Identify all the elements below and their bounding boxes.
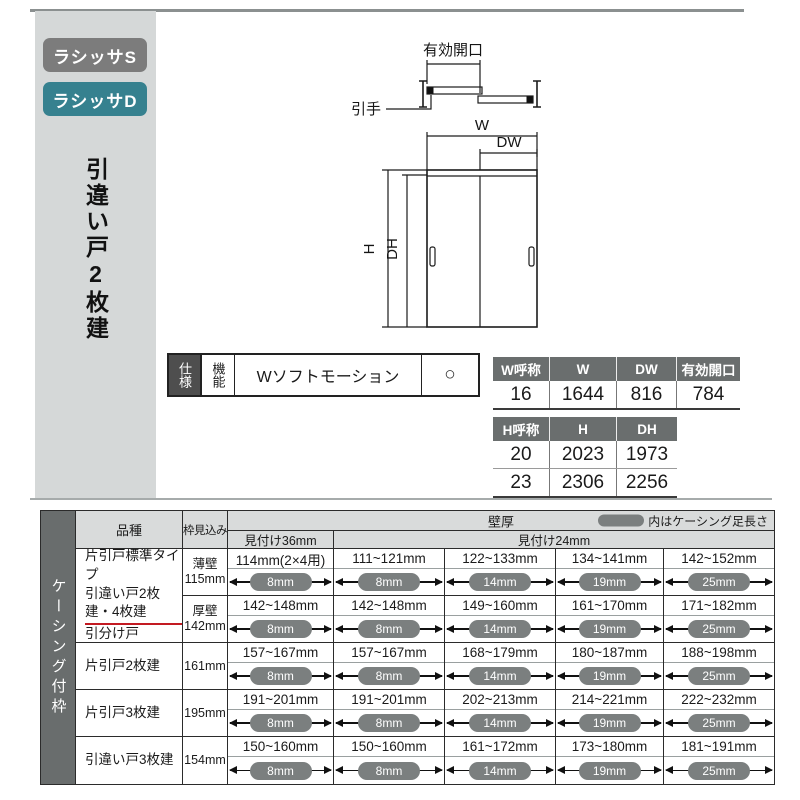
casing-leg-pill: 8mm — [250, 714, 312, 732]
casing-leg-dimension: 8mm — [334, 569, 444, 595]
wall-range-cell: 122~133mm 14mm — [445, 549, 556, 596]
table-row: 23 2306 2256 — [493, 469, 677, 498]
wall-thickness-range: 149~160mm — [445, 596, 555, 616]
col-header: H呼称 — [493, 417, 550, 441]
arrow-right-icon — [546, 578, 554, 586]
col-header: DH — [617, 417, 677, 441]
arrow-right-icon — [324, 719, 332, 727]
wall-range-cell: 202~213mm 14mm — [445, 690, 556, 737]
casing-leg-pill: 19mm — [579, 667, 641, 685]
w-dimension-label: W — [475, 117, 490, 134]
casing-leg-pill: 25mm — [688, 762, 750, 780]
arrow-left-icon — [229, 578, 237, 586]
cell-h-name: 23 — [493, 469, 550, 496]
arrow-left-icon — [335, 766, 343, 774]
casing-leg-pill: 14mm — [469, 667, 531, 685]
arrow-right-icon — [654, 625, 662, 633]
wall-range-cell: 150~160mm 8mm — [334, 737, 445, 784]
arrow-right-icon — [546, 672, 554, 680]
arrow-left-icon — [446, 578, 454, 586]
casing-leg-pill: 8mm — [250, 667, 312, 685]
wall-range-cell: 142~148mm 8mm — [334, 596, 445, 643]
arrow-left-icon — [665, 766, 673, 774]
casing-frame-table: ケーシング付枠 品種 枠見込み 壁厚 内はケーシング足長さ 見付け36mm 見付… — [40, 510, 775, 785]
product-line-badge-lasissa-s: ラシッサS — [43, 38, 147, 72]
casing-leg-dimension: 14mm — [445, 710, 555, 736]
col-header: 有効開口 — [677, 357, 740, 381]
product-name-group4: 引違い戸3枚建 — [76, 737, 183, 784]
wall-thickness-range: 142~148mm — [228, 596, 333, 616]
arrow-left-icon — [229, 719, 237, 727]
casing-leg-dimension: 25mm — [664, 663, 774, 689]
arrow-left-icon — [335, 625, 343, 633]
arrow-right-icon — [654, 766, 662, 774]
table-row: 16 1644 816 784 — [493, 381, 740, 410]
wall-range-cell: 149~160mm 14mm — [445, 596, 556, 643]
casing-leg-pill: 8mm — [250, 620, 312, 638]
pull-handle-label: 引手 — [351, 101, 381, 118]
wall-thickness-range: 150~160mm — [228, 737, 333, 757]
spec-table: 仕様 機能 Wソフトモーション ○ — [167, 353, 480, 397]
cell-effective-opening: 784 — [677, 381, 740, 408]
arrow-right-icon — [435, 719, 443, 727]
wall-thickness-range: 161~170mm — [556, 596, 663, 616]
wall-range-cell: 111~121mm 8mm — [334, 549, 445, 596]
wall-range-cell: 173~180mm 19mm — [556, 737, 664, 784]
wall-range-cell: 180~187mm 19mm — [556, 643, 664, 690]
casing-leg-dimension: 25mm — [664, 757, 774, 784]
casing-leg-pill: 14mm — [469, 620, 531, 638]
product-line-highlighted: 引違い戸2枚建・4枚建 — [85, 585, 182, 626]
wall-thickness-range: 214~221mm — [556, 690, 663, 710]
casing-leg-pill: 19mm — [579, 762, 641, 780]
col-header: DW — [617, 357, 677, 381]
arrow-right-icon — [765, 578, 773, 586]
sidebar: ラシッサS ラシッサD 引違い戸2枚建 — [35, 11, 156, 498]
col-header: W — [550, 357, 617, 381]
arrow-right-icon — [654, 578, 662, 586]
arrow-left-icon — [229, 766, 237, 774]
casing-leg-pill: 25mm — [688, 620, 750, 638]
wall-thickness-range: 157~167mm — [228, 643, 333, 663]
casing-leg-dimension: 8mm — [334, 663, 444, 689]
arrow-right-icon — [654, 672, 662, 680]
arrow-left-icon — [557, 672, 565, 680]
wall-thickness-range: 191~201mm — [228, 690, 333, 710]
casing-leg-dimension: 14mm — [445, 569, 555, 595]
wall-range-cell: 214~221mm 19mm — [556, 690, 664, 737]
cell-w-name: 16 — [493, 381, 550, 408]
header-frame-depth: 枠見込み — [183, 511, 228, 549]
frame-depth-value: 115mm — [185, 572, 226, 587]
product-line: 引分け戸 — [85, 625, 182, 643]
header-wall-thickness: 壁厚 内はケーシング足長さ — [228, 511, 774, 531]
arrow-right-icon — [765, 719, 773, 727]
arrow-left-icon — [557, 719, 565, 727]
h-dimension-table: H呼称 H DH 20 2023 1973 23 2306 2256 — [493, 417, 677, 498]
casing-leg-dimension: 25mm — [664, 616, 774, 642]
arrow-right-icon — [324, 578, 332, 586]
casing-leg-dimension: 19mm — [556, 569, 663, 595]
arrow-left-icon — [335, 672, 343, 680]
col-header: W呼称 — [493, 357, 550, 381]
frame-depth-cell: 161mm — [183, 643, 228, 690]
wall-thickness-range: 142~148mm — [334, 596, 444, 616]
page-title: 引違い戸2枚建 — [79, 157, 113, 342]
wall-range-cell: 188~198mm 25mm — [664, 643, 774, 690]
arrow-right-icon — [546, 625, 554, 633]
arrow-left-icon — [665, 719, 673, 727]
wall-range-cell: 171~182mm 25mm — [664, 596, 774, 643]
wall-thickness-range: 222~232mm — [664, 690, 774, 710]
casing-leg-dimension: 25mm — [664, 710, 774, 736]
arrow-right-icon — [546, 719, 554, 727]
casing-leg-dimension: 19mm — [556, 757, 663, 784]
casing-side-label: ケーシング付枠 — [41, 511, 76, 784]
casing-leg-dimension: 8mm — [228, 616, 333, 642]
casing-leg-dimension: 8mm — [228, 757, 333, 784]
wall-range-cell: 191~201mm 8mm — [334, 690, 445, 737]
casing-leg-pill: 8mm — [250, 762, 312, 780]
casing-leg-dimension: 8mm — [228, 663, 333, 689]
wall-range-cell: 114mm(2×4用) 8mm — [228, 549, 334, 596]
casing-leg-dimension: 19mm — [556, 616, 663, 642]
casing-leg-pill: 14mm — [469, 762, 531, 780]
w-table-header: W呼称 W DW 有効開口 — [493, 357, 740, 381]
h-table-header: H呼称 H DH — [493, 417, 677, 441]
arrow-left-icon — [665, 672, 673, 680]
casing-leg-pill: 14mm — [469, 714, 531, 732]
wall-thickness-range: 168~179mm — [445, 643, 555, 663]
wall-thickness-range: 181~191mm — [664, 737, 774, 757]
arrow-right-icon — [765, 625, 773, 633]
cell-dh: 2256 — [617, 469, 677, 496]
casing-leg-pill: 8mm — [358, 620, 420, 638]
frame-depth-cell: 厚壁 142mm — [183, 596, 228, 643]
table-row: 20 2023 1973 — [493, 441, 677, 469]
casing-leg-pill: 8mm — [358, 714, 420, 732]
casing-leg-pill: 14mm — [469, 573, 531, 591]
cell-h: 2023 — [550, 441, 617, 468]
arrow-right-icon — [654, 719, 662, 727]
casing-leg-pill: 8mm — [250, 573, 312, 591]
col-header: H — [550, 417, 617, 441]
frame-depth-cell: 薄壁 115mm — [183, 549, 228, 596]
arrow-right-icon — [435, 578, 443, 586]
product-name-group2: 片引戸2枚建 — [76, 643, 183, 690]
casing-leg-dimension: 19mm — [556, 663, 663, 689]
wall-thickness-range: 188~198mm — [664, 643, 774, 663]
wall-thickness-range: 150~160mm — [334, 737, 444, 757]
arrow-left-icon — [229, 672, 237, 680]
effective-opening-label: 有効開口 — [423, 42, 483, 59]
legend: 内はケーシング足長さ — [598, 512, 768, 529]
casing-leg-pill: 8mm — [358, 667, 420, 685]
arrow-left-icon — [446, 766, 454, 774]
cell-w: 1644 — [550, 381, 617, 408]
wall-thickness-range: 111~121mm — [334, 549, 444, 569]
wall-range-cell: 191~201mm 8mm — [228, 690, 334, 737]
legend-note: 内はケーシング足長さ — [648, 512, 768, 529]
spec-col-header: 機能 — [202, 355, 235, 395]
arrow-right-icon — [324, 672, 332, 680]
wall-range-cell: 168~179mm 14mm — [445, 643, 556, 690]
header-mitsuke36: 見付け36mm — [228, 531, 334, 549]
cell-h-name: 20 — [493, 441, 550, 468]
header-mitsuke24: 見付け24mm — [334, 531, 774, 549]
arrow-right-icon — [435, 766, 443, 774]
casing-leg-dimension: 8mm — [334, 710, 444, 736]
wall-thickness-range: 157~167mm — [334, 643, 444, 663]
wall-thickness-label: 壁厚 — [488, 511, 514, 530]
wall-range-cell: 157~167mm 8mm — [334, 643, 445, 690]
arrow-right-icon — [324, 766, 332, 774]
arrow-left-icon — [335, 719, 343, 727]
casing-leg-dimension: 8mm — [334, 616, 444, 642]
casing-leg-dimension: 14mm — [445, 663, 555, 689]
wall-type: 厚壁 — [184, 604, 226, 619]
casing-leg-dimension: 25mm — [664, 569, 774, 595]
arrow-left-icon — [446, 625, 454, 633]
wall-range-cell: 150~160mm 8mm — [228, 737, 334, 784]
wall-thickness-range: 142~152mm — [664, 549, 774, 569]
wall-range-cell: 222~232mm 25mm — [664, 690, 774, 737]
wall-thickness-range: 161~172mm — [445, 737, 555, 757]
wall-type: 薄壁 — [185, 557, 226, 572]
arrow-right-icon — [765, 672, 773, 680]
wall-range-cell: 161~170mm 19mm — [556, 596, 664, 643]
casing-leg-pill: 19mm — [579, 714, 641, 732]
dh-dimension-label: DH — [384, 238, 401, 260]
casing-leg-dimension: 14mm — [445, 616, 555, 642]
spec-feature-name: Wソフトモーション — [235, 355, 422, 395]
wall-range-cell: 181~191mm 25mm — [664, 737, 774, 784]
product-line: 片引戸標準タイプ — [85, 549, 182, 585]
legend-pill-icon — [598, 515, 644, 527]
casing-leg-dimension: 14mm — [445, 757, 555, 784]
cell-h: 2306 — [550, 469, 617, 496]
spec-availability-mark: ○ — [422, 355, 478, 395]
wall-thickness-range: 122~133mm — [445, 549, 555, 569]
h-dimension-label: H — [361, 244, 378, 255]
arrow-left-icon — [665, 578, 673, 586]
arrow-left-icon — [557, 625, 565, 633]
wall-range-cell: 161~172mm 14mm — [445, 737, 556, 784]
wall-thickness-range: 173~180mm — [556, 737, 663, 757]
arrow-left-icon — [665, 625, 673, 633]
product-line-badge-lasissa-d: ラシッサD — [43, 82, 147, 116]
w-dimension-table: W呼称 W DW 有効開口 16 1644 816 784 — [493, 357, 740, 410]
section-divider — [30, 498, 772, 500]
arrow-left-icon — [557, 578, 565, 586]
frame-depth-cell: 154mm — [183, 737, 228, 784]
diagram-lines — [382, 60, 541, 327]
casing-leg-pill: 25mm — [688, 667, 750, 685]
door-diagram: 有効開口 引手 W DW H DH — [330, 30, 570, 340]
cell-dw: 816 — [617, 381, 677, 408]
casing-leg-pill: 8mm — [358, 762, 420, 780]
arrow-right-icon — [765, 766, 773, 774]
wall-range-cell: 142~152mm 25mm — [664, 549, 774, 596]
product-name-group1: 片引戸標準タイプ 引違い戸2枚建・4枚建 引分け戸 — [76, 549, 183, 643]
wall-range-cell: 142~148mm 8mm — [228, 596, 334, 643]
wall-thickness-range: 171~182mm — [664, 596, 774, 616]
spec-row-header: 仕様 — [169, 355, 202, 395]
casing-leg-dimension: 19mm — [556, 710, 663, 736]
arrow-left-icon — [446, 719, 454, 727]
cell-dh: 1973 — [617, 441, 677, 468]
product-name-group3: 片引戸3枚建 — [76, 690, 183, 737]
arrow-left-icon — [446, 672, 454, 680]
dw-dimension-label: DW — [497, 134, 523, 151]
arrow-right-icon — [435, 672, 443, 680]
casing-leg-dimension: 8mm — [228, 569, 333, 595]
arrow-left-icon — [335, 578, 343, 586]
arrow-left-icon — [557, 766, 565, 774]
casing-leg-pill: 8mm — [358, 573, 420, 591]
wall-range-cell: 157~167mm 8mm — [228, 643, 334, 690]
casing-leg-pill: 19mm — [579, 573, 641, 591]
arrow-right-icon — [546, 766, 554, 774]
wall-thickness-range: 202~213mm — [445, 690, 555, 710]
frame-depth-value: 142mm — [184, 619, 226, 634]
wall-thickness-range: 114mm(2×4用) — [228, 549, 333, 569]
casing-leg-pill: 25mm — [688, 573, 750, 591]
arrow-right-icon — [435, 625, 443, 633]
wall-thickness-range: 134~141mm — [556, 549, 663, 569]
wall-thickness-range: 180~187mm — [556, 643, 663, 663]
casing-leg-pill: 25mm — [688, 714, 750, 732]
wall-thickness-range: 191~201mm — [334, 690, 444, 710]
wall-range-cell: 134~141mm 19mm — [556, 549, 664, 596]
casing-leg-dimension: 8mm — [228, 710, 333, 736]
casing-leg-pill: 19mm — [579, 620, 641, 638]
arrow-right-icon — [324, 625, 332, 633]
header-product: 品種 — [76, 511, 183, 549]
frame-depth-cell: 195mm — [183, 690, 228, 737]
casing-leg-dimension: 8mm — [334, 757, 444, 784]
arrow-left-icon — [229, 625, 237, 633]
